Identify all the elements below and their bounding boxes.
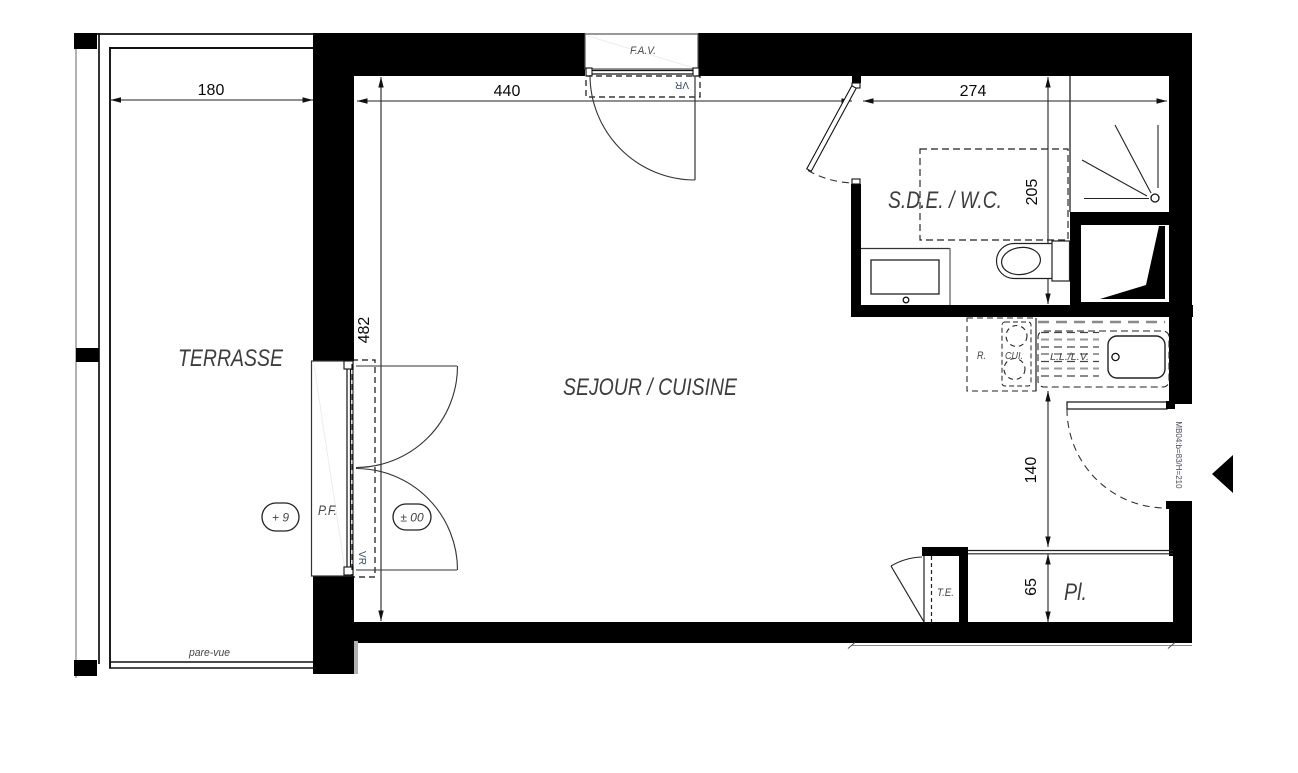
svg-text:140: 140	[1023, 457, 1040, 484]
svg-text:180: 180	[198, 82, 225, 99]
svg-text:VR: VR	[675, 79, 689, 90]
svg-text:SEJOUR / CUISINE: SEJOUR / CUISINE	[563, 374, 738, 401]
svg-text:R.: R.	[977, 350, 986, 362]
svg-text:65: 65	[1023, 578, 1040, 596]
svg-text:T.E.: T.E.	[937, 587, 954, 599]
svg-text:440: 440	[494, 83, 521, 100]
svg-text:274: 274	[960, 83, 987, 100]
svg-text:± 00: ± 00	[400, 511, 424, 525]
svg-text:L.L./L.V.: L.L./L.V.	[1050, 352, 1089, 363]
svg-text:S.D.E. / W.C.: S.D.E. / W.C.	[888, 187, 1002, 214]
svg-text:VR: VR	[356, 551, 367, 565]
svg-text:F.A.V.: F.A.V.	[630, 45, 656, 57]
svg-text:MB04:b=83/H=210: MB04:b=83/H=210	[1174, 421, 1183, 489]
svg-text:482: 482	[356, 317, 373, 344]
svg-text:Pl.: Pl.	[1064, 579, 1087, 606]
svg-text:CUI.: CUI.	[1005, 351, 1023, 362]
svg-text:P.F.: P.F.	[318, 502, 337, 518]
svg-text:205: 205	[1024, 179, 1041, 206]
svg-text:TERRASSE: TERRASSE	[178, 345, 284, 372]
svg-text:+ 9: + 9	[272, 511, 289, 525]
svg-text:pare-vue: pare-vue	[188, 647, 230, 659]
